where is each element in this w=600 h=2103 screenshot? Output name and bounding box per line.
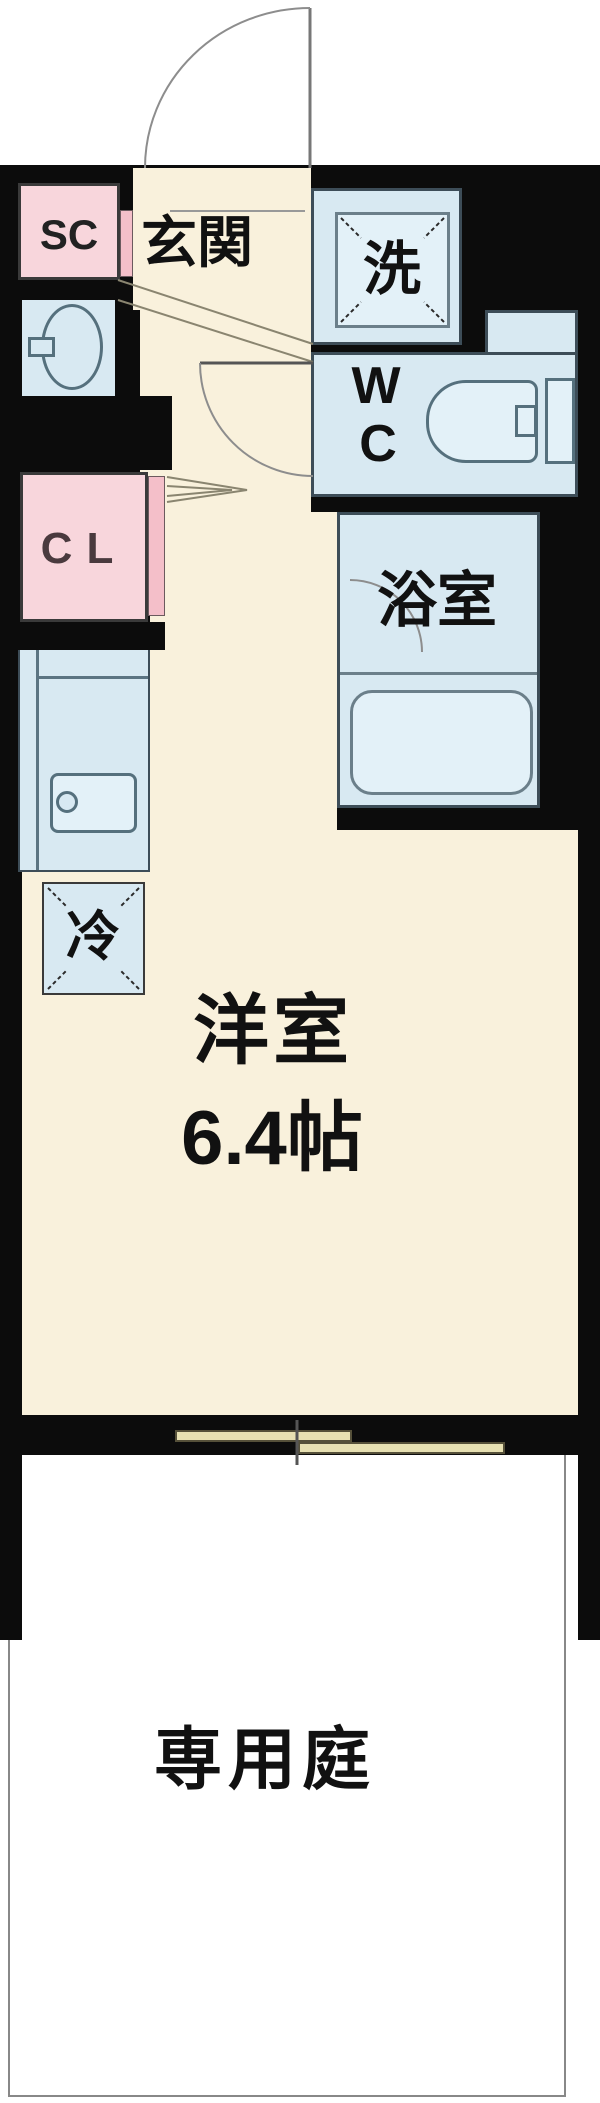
genkan-label: 玄関: [141, 215, 253, 271]
kitchen-faucet-icon: [56, 791, 78, 813]
fridge-label: 冷: [66, 910, 120, 964]
toilet-seat-hinge: [515, 405, 537, 437]
wall-closet-kitchen: [18, 622, 165, 650]
wall-bottom-left: [22, 1415, 157, 1448]
shoe-closet-label: SC: [40, 214, 98, 256]
entrance-door-swing-arc: [145, 8, 310, 168]
wall-bottom-left-step: [157, 1428, 177, 1455]
closet-label: CL: [41, 527, 128, 571]
kitchen-counter-top-line: [39, 676, 148, 679]
kitchen-counter-edge-line: [36, 650, 39, 870]
window-sash-left: [175, 1430, 352, 1442]
shoe-closet-door: [120, 210, 133, 277]
wall-stub-left-garden: [0, 1452, 22, 1640]
bathroom-label: 浴室: [377, 571, 497, 631]
wc-label-c: C: [359, 418, 397, 470]
window-sash-right: [298, 1442, 505, 1454]
garden-label: 専用庭: [154, 1726, 376, 1794]
washer-label: 洗: [363, 241, 421, 299]
hallway-lower-floor: [150, 500, 311, 832]
bathtub: [350, 690, 533, 795]
floor-plan: 玄関 洗 W C 浴室 SC CL 冷 洋室 6.4帖 専用庭: [0, 0, 600, 2103]
wc-label-w: W: [351, 360, 400, 412]
western-room-label: 洋室: [193, 994, 353, 1070]
bathroom-divider-line: [340, 672, 537, 675]
hallway-bathroom-side-floor: [311, 512, 337, 832]
western-room-size-label: 6.4帖: [181, 1101, 363, 1177]
wall-shaft: [22, 396, 172, 470]
washbasin-faucet: [28, 337, 55, 357]
toilet-tank: [545, 378, 575, 464]
wall-stub-right-garden: [578, 1428, 600, 1640]
wc-room-extension: [485, 310, 578, 355]
closet-door: [148, 476, 165, 616]
